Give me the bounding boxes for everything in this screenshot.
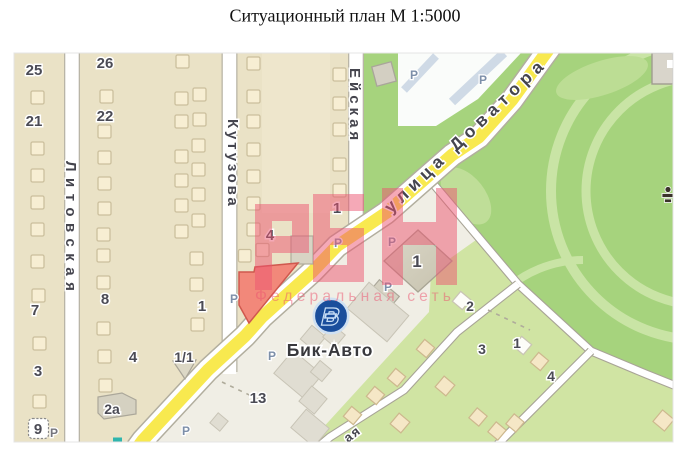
svg-text:1: 1 bbox=[198, 298, 206, 315]
svg-text:Р: Р bbox=[479, 73, 487, 87]
svg-text:9: 9 bbox=[34, 421, 42, 438]
svg-text:8: 8 bbox=[101, 291, 109, 308]
svg-text:1/1: 1/1 bbox=[174, 349, 194, 365]
svg-text:7: 7 bbox=[31, 302, 39, 319]
svg-text:Литовская: Литовская bbox=[62, 161, 79, 297]
svg-text:25: 25 bbox=[26, 62, 43, 79]
svg-text:1: 1 bbox=[513, 335, 521, 351]
svg-text:13: 13 bbox=[250, 390, 267, 407]
svg-text:Бик-Авто: Бик-Авто bbox=[287, 340, 374, 360]
svg-text:Р: Р bbox=[50, 426, 58, 440]
svg-text:1: 1 bbox=[412, 252, 421, 271]
svg-text:4: 4 bbox=[547, 368, 555, 384]
svg-text:3: 3 bbox=[478, 341, 486, 357]
svg-text:Ейская: Ейская bbox=[346, 68, 363, 144]
svg-text:2a: 2a bbox=[104, 401, 120, 417]
svg-text:Р: Р bbox=[230, 292, 238, 306]
svg-text:Р: Р bbox=[410, 68, 418, 82]
svg-text:Кутузова: Кутузова bbox=[224, 119, 241, 209]
svg-text:22: 22 bbox=[97, 108, 114, 125]
svg-text:2: 2 bbox=[466, 298, 474, 314]
svg-text:Федеральная сеть: Федеральная сеть bbox=[255, 288, 455, 305]
svg-text:Р: Р bbox=[182, 424, 190, 438]
svg-text:26: 26 bbox=[97, 55, 114, 72]
svg-text:21: 21 bbox=[26, 113, 43, 130]
svg-text:Ситуационный план М 1:5000: Ситуационный план М 1:5000 bbox=[229, 6, 460, 26]
svg-text:Р: Р bbox=[268, 349, 276, 363]
svg-text:3: 3 bbox=[34, 363, 42, 380]
svg-text:4: 4 bbox=[129, 349, 138, 366]
